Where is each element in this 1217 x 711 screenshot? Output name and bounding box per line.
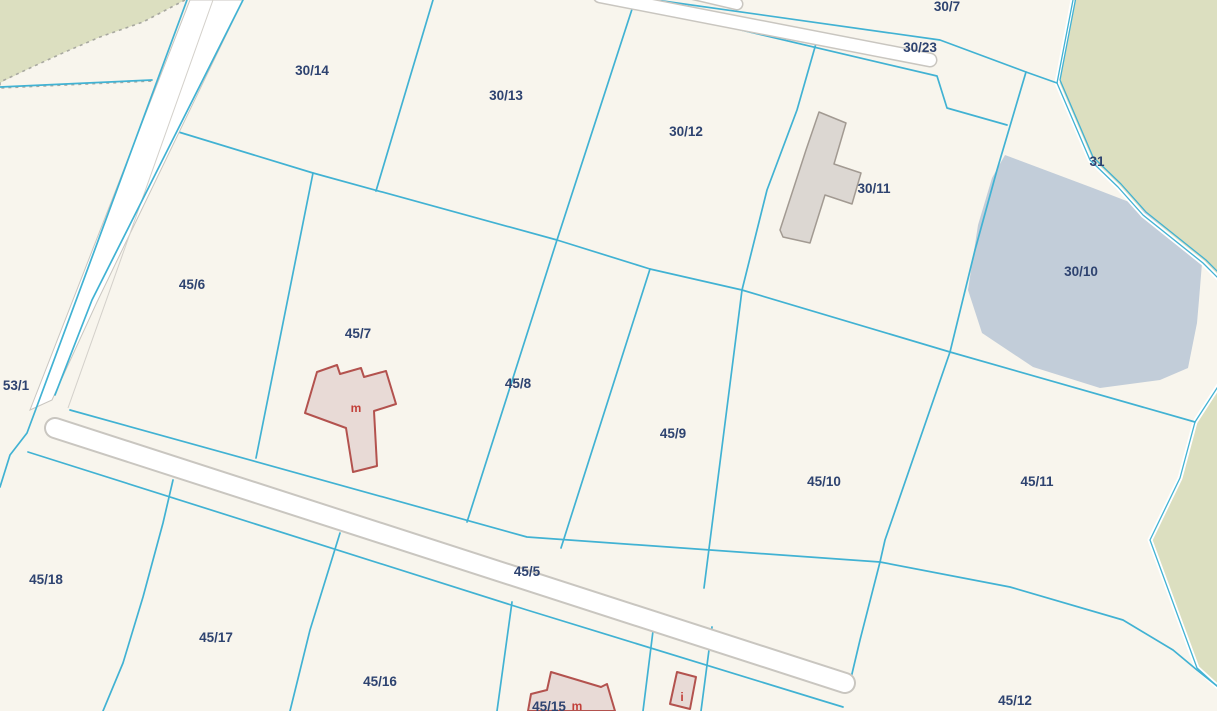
parcel-label-30-11: 30/11 — [857, 181, 891, 196]
parcel-label-45-15: 45/15 — [532, 699, 566, 711]
parcel-label-45-5: 45/5 — [514, 564, 541, 579]
parcel-label-45-18: 45/18 — [29, 572, 63, 587]
parcel-label-30-12: 30/12 — [669, 124, 703, 139]
parcel-label-45-8: 45/8 — [505, 376, 532, 391]
parcel-label-45-7: 45/7 — [345, 326, 371, 341]
parcel-label-30-23: 30/23 — [903, 40, 937, 55]
parcel-label-45-11: 45/11 — [1020, 474, 1054, 489]
building-label-i: i — [680, 690, 683, 704]
parcel-label-45-12: 45/12 — [998, 693, 1032, 708]
parcel-label-45-6: 45/6 — [179, 277, 206, 292]
parcel-label-30-7: 30/7 — [934, 0, 960, 14]
building-label-m-45-15: m — [572, 699, 583, 711]
parcel-label-30-13: 30/13 — [489, 88, 523, 103]
parcel-label-53-1: 53/1 — [3, 378, 30, 393]
parcel-label-45-10: 45/10 — [807, 474, 841, 489]
parcel-label-45-9: 45/9 — [660, 426, 686, 441]
parcel-label-45-17: 45/17 — [199, 630, 233, 645]
parcel-label-30-14: 30/14 — [295, 63, 329, 78]
parcel-label-31: 31 — [1089, 154, 1105, 169]
map-canvas[interactable]: 30/14 30/13 30/12 30/11 30/7 30/23 31 30… — [0, 0, 1217, 711]
parcel-label-30-10: 30/10 — [1064, 264, 1098, 279]
parcel-label-45-16: 45/16 — [363, 674, 397, 689]
building-label-m-45-7: m — [351, 401, 362, 415]
